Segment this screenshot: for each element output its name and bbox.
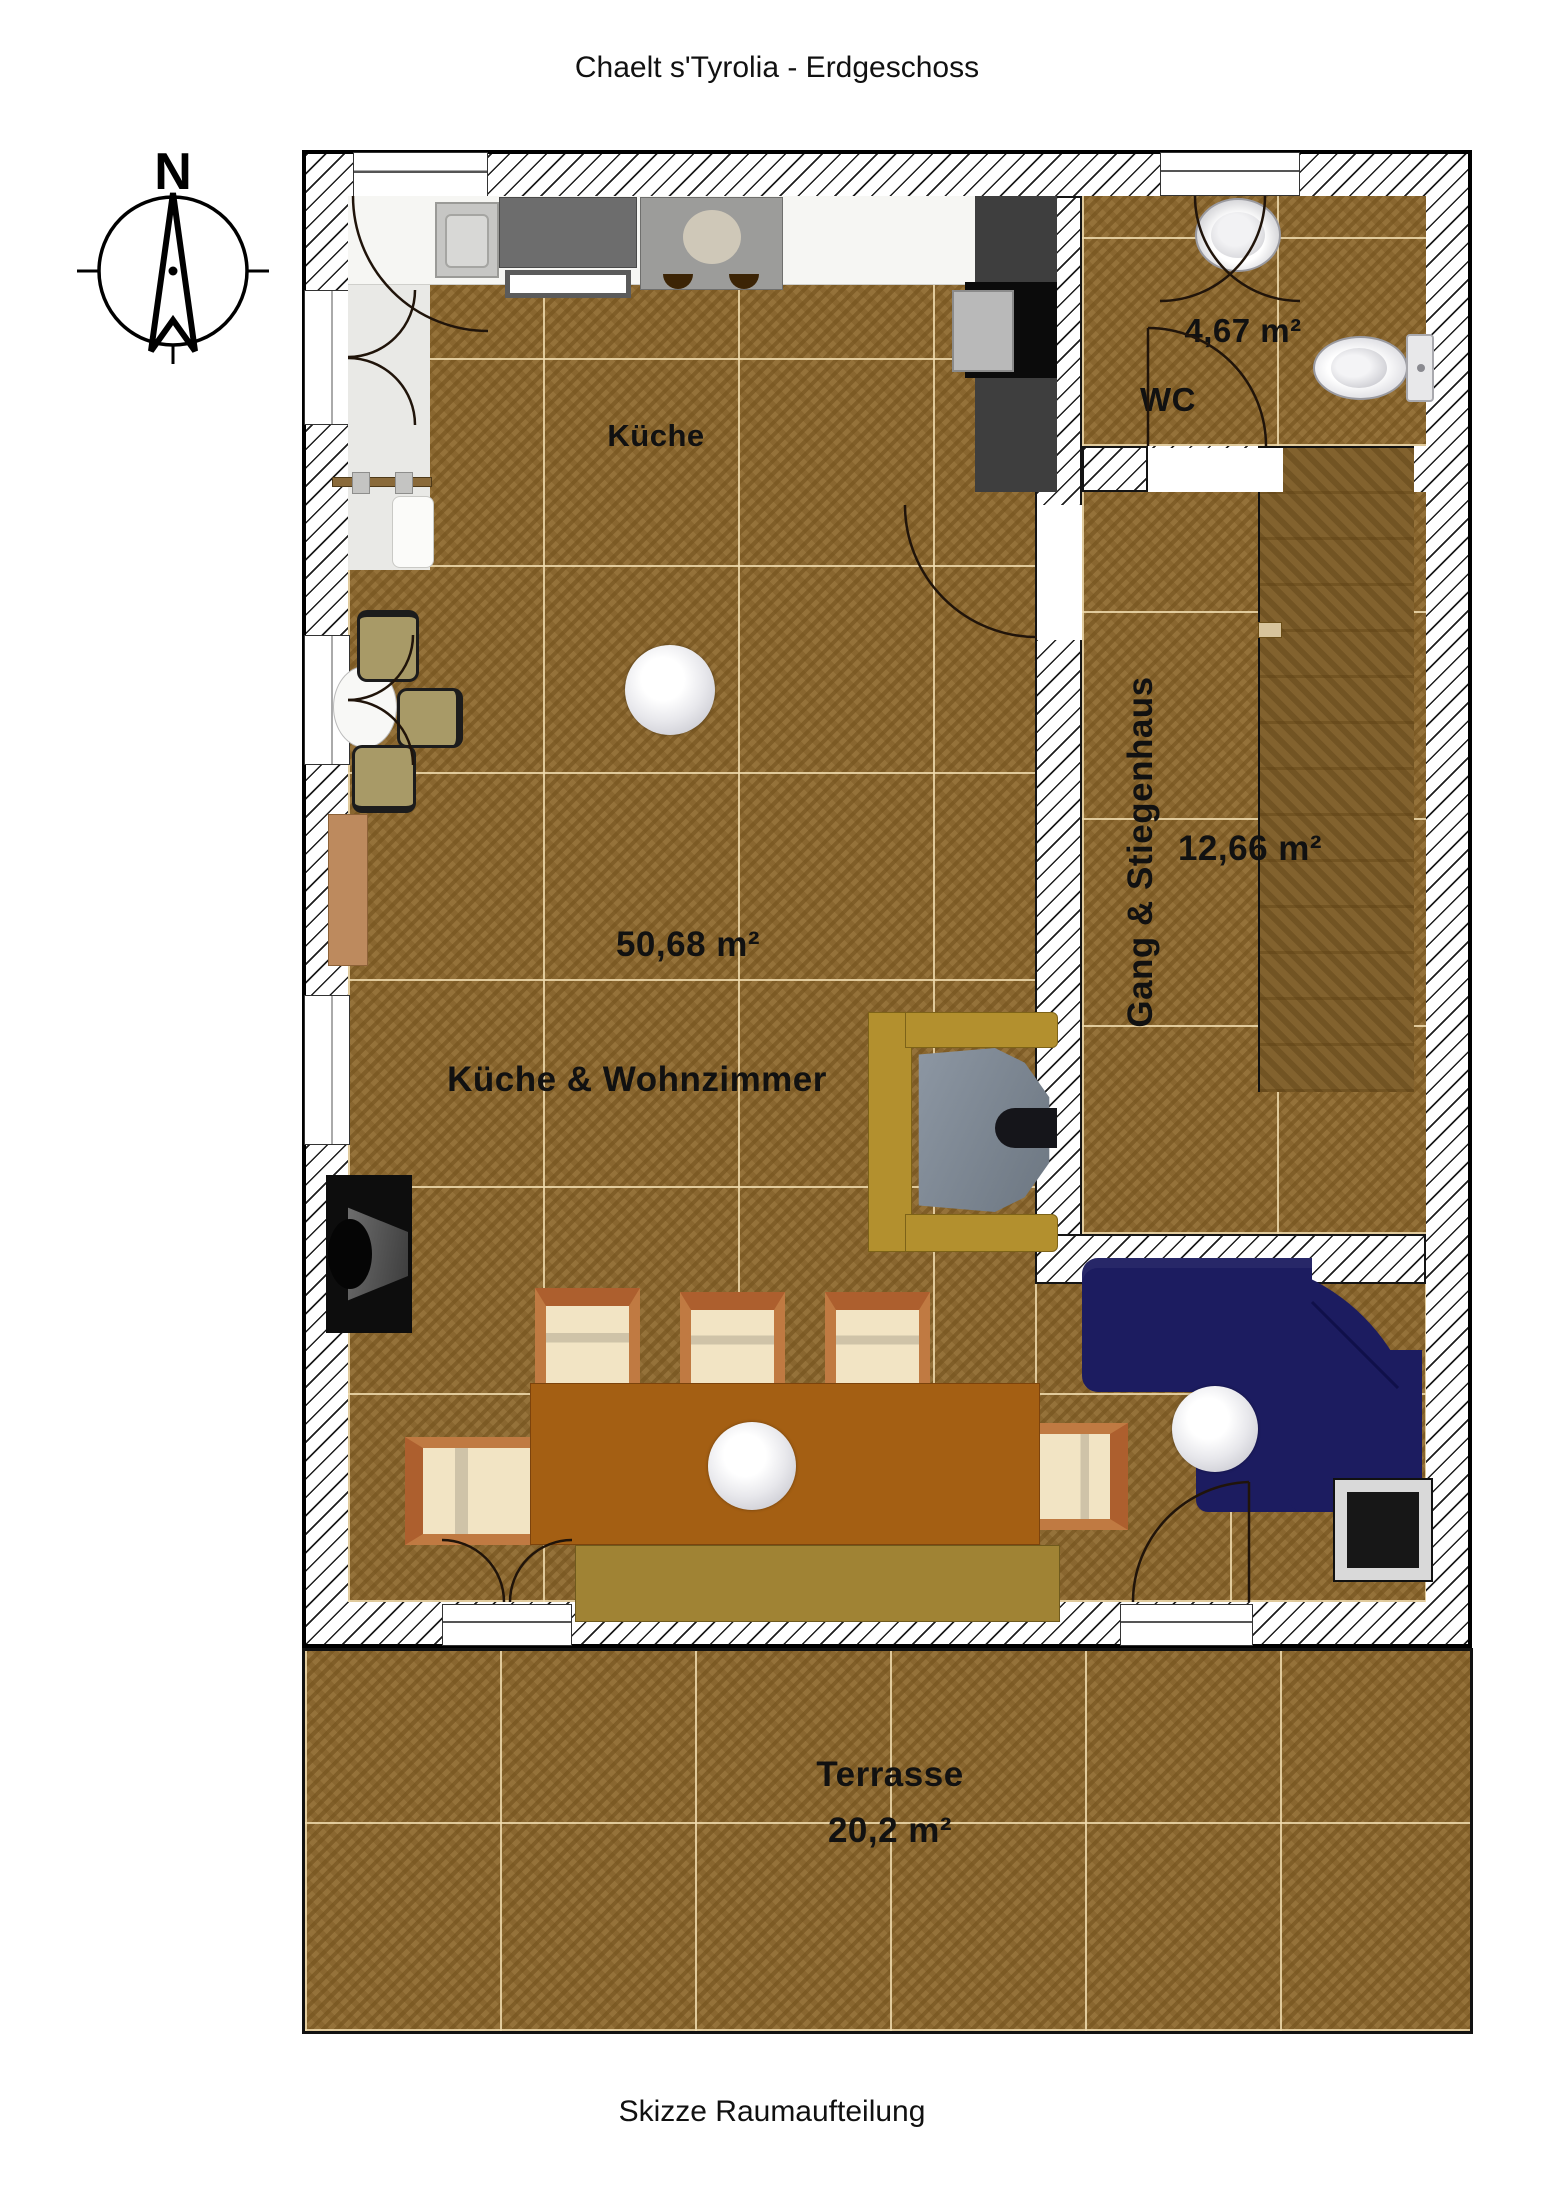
burner-right	[729, 274, 759, 289]
floor-plan-page: Chaelt s'Tyrolia - Erdgeschoss	[0, 0, 1555, 2200]
wc-toilet-inner	[1331, 348, 1387, 388]
tv-screen-block	[995, 1108, 1057, 1148]
dining-chair-1	[535, 1288, 640, 1385]
wall-shelf	[332, 477, 432, 487]
compass-rose: N	[77, 143, 269, 364]
wall-shelf-bracket-right	[395, 472, 413, 494]
armchair-top	[357, 610, 419, 682]
tv-cabinet-top-bar	[905, 1012, 1058, 1048]
fireplace	[326, 1175, 412, 1333]
kitchen-top-door-opening	[353, 152, 488, 198]
dining-chair-left	[405, 1437, 530, 1545]
sofa-ceiling-lamp	[1172, 1386, 1258, 1472]
sofa-horizontal-section	[1082, 1258, 1312, 1392]
armchair-right	[397, 688, 463, 748]
wc-window	[1160, 152, 1300, 196]
left-window	[304, 995, 350, 1145]
cooktop	[499, 197, 637, 268]
terrace-single-door-opening	[1120, 1604, 1253, 1646]
sofa-side-table-top	[1347, 1492, 1419, 1568]
left-glass-door-upper	[304, 290, 350, 425]
wc-label: WC	[1140, 381, 1196, 419]
burner-left	[663, 274, 693, 289]
dining-ceiling-lamp	[708, 1422, 796, 1510]
compass-center-dot	[169, 267, 178, 276]
terrace-area-label: 20,2 m²	[828, 1811, 952, 1851]
wc-sink	[1195, 198, 1281, 272]
sofa-side-table	[1333, 1478, 1433, 1582]
wall-shelf-bracket-left	[352, 472, 370, 494]
wc-door-opening	[1148, 448, 1283, 492]
sideboard	[328, 814, 368, 966]
tv-cabinet-bottom-bar	[905, 1214, 1058, 1252]
round-basin	[683, 210, 741, 264]
compass-north-label: N	[154, 143, 192, 201]
staircase-landing-mark	[1258, 622, 1282, 638]
wc-cistern	[1406, 334, 1434, 402]
fireplace-port	[328, 1219, 372, 1289]
hall-area-label: 12,66 m²	[1178, 829, 1322, 869]
kitchen-sink	[435, 202, 499, 278]
page-title: Chaelt s'Tyrolia - Erdgeschoss	[575, 51, 979, 85]
living-label: Küche & Wohnzimmer	[447, 1060, 827, 1100]
kitchen-ceiling-lamp	[625, 645, 715, 735]
wc-sink-basin	[1211, 212, 1265, 258]
oven-door	[952, 290, 1014, 372]
wc-cistern-button	[1417, 364, 1425, 372]
kitchen-label: Küche	[607, 418, 704, 454]
hall-door-opening	[1037, 505, 1082, 640]
wall-wc-hall	[1082, 446, 1148, 492]
sink-basin	[445, 214, 489, 268]
dining-chair-2	[680, 1292, 785, 1385]
hall-label: Gang & Stiegenhaus	[1121, 676, 1161, 1027]
terrace-double-door-opening	[442, 1604, 572, 1646]
staircase	[1258, 446, 1414, 1092]
armchair-bottom	[352, 745, 416, 813]
dining-chair-3	[825, 1292, 930, 1385]
wc-toilet-bowl	[1313, 336, 1408, 400]
living-area-label: 50,68 m²	[616, 925, 760, 965]
small-white-table	[392, 496, 434, 568]
terrace-label: Terrasse	[816, 1755, 963, 1795]
round-basin-appliance	[640, 197, 783, 290]
dining-bench	[575, 1545, 1060, 1622]
dining-chair-right	[1040, 1423, 1128, 1530]
wc-area-label: 4,67 m²	[1184, 312, 1301, 350]
cooktop-drawer	[505, 270, 631, 298]
caption: Skizze Raumaufteilung	[619, 2095, 926, 2129]
compass-needle	[151, 193, 195, 351]
